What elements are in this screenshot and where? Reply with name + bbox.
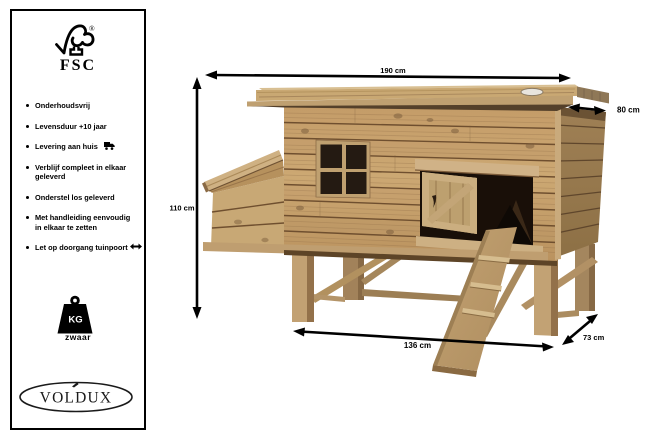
svg-text:VOLDUX: VOLDUX [40, 390, 113, 407]
svg-text:®: ® [89, 24, 95, 33]
svg-text:190 cm: 190 cm [380, 66, 406, 75]
svg-text:KG: KG [68, 315, 82, 326]
svg-text:136 cm: 136 cm [404, 341, 431, 350]
svg-text:110 cm: 110 cm [169, 204, 194, 213]
svg-text:73 cm: 73 cm [583, 333, 605, 342]
svg-text:80 cm: 80 cm [617, 106, 640, 115]
